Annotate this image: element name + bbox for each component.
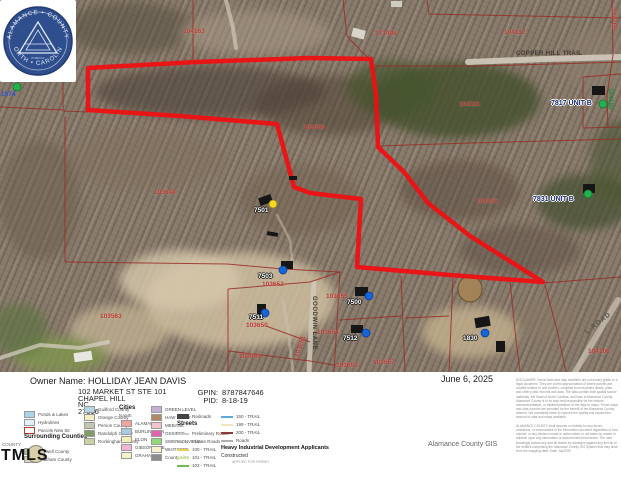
legend-item: GREEN LEVEL [151,406,196,413]
parcel-label: 104106 [588,348,610,355]
legend-item: ELON [121,436,147,443]
legend-item: 150 - TRAIL [221,414,260,419]
legend-heading: APPLIED FOR PERMIT [232,460,269,464]
parcel-label: 104163 [183,28,205,35]
legend-swatch [221,424,233,426]
legend-swatch [84,406,95,413]
parcel-label: 103657 [373,359,395,366]
road-label: GOODWIN LANE [310,296,317,350]
legend-swatch [177,457,189,459]
legend-swatch [151,438,162,445]
legend-swatch [151,446,162,453]
legend-item: Private Roads [177,439,220,444]
legend-heading: Surrounding Counties [24,434,87,440]
legend-swatch [177,441,189,443]
parcel-label: 7512 [343,335,357,342]
green-point-marker [584,190,592,198]
pond [458,276,482,302]
legend-item: Roads [221,438,249,443]
legend-label: GREEN LEVEL [165,407,196,412]
parcel-label: 7831 UNIT B [533,196,574,203]
legend-swatch [121,452,132,459]
info-band: Owner Name: HOLLIDAY JEAN DAVIS June 6, … [0,372,621,480]
yellow-point-marker [269,200,277,208]
legend-swatch [84,422,95,429]
legend-swatch [121,428,132,435]
legend-item: 101 - TRAIL [177,455,216,460]
legend-swatch [151,414,162,421]
parcel-label: 103656 [303,124,325,131]
legend-label: 150 - TRAIL [236,414,260,419]
legend-item: Hydrolines [24,419,59,426]
legend-heading: Heavy Industrial Development Applicants [221,445,329,451]
legend-item: Railroads [177,414,211,419]
legend-item: 102 - TRAIL [177,463,216,468]
legend-heading: Cities [119,405,135,411]
legend-item: Ponds & Lakes [24,411,68,418]
legend-swatch [24,411,35,418]
legend-label: 200 - TRAIL [236,430,260,435]
legend-label: Hydrolines [38,420,59,425]
legend-swatch [151,422,162,429]
parcel-label: 103652 [262,281,284,288]
legend-swatch [177,414,189,419]
legend-swatch [84,438,95,445]
parcel-label: 7500 [347,299,361,306]
legend-label: 100 - TRAIL [192,447,216,452]
legend-label: Railroads [192,414,211,419]
seal-motto: PUBLICO [31,56,45,60]
blue-point-marker [365,292,373,300]
legend-swatch [84,430,95,437]
legend-swatch [121,420,132,427]
parcel-label: 7511 [249,314,263,321]
legend-swatch [121,444,132,451]
green-point-marker [13,83,21,91]
legend-swatch [177,433,189,435]
legend-swatch [221,416,233,418]
legend-heading: Constructed [221,453,248,459]
legend-swatch [24,427,35,434]
parcel-label: 1574 [1,91,15,98]
legend-label: 101 - TRAIL [192,455,216,460]
blue-point-marker [362,329,370,337]
parcel-label: 103654 [317,329,339,336]
legend-heading: Streets [177,421,197,427]
legend-swatch [221,432,233,434]
parcel-label: 103563 [100,313,122,320]
parcel-label: 103653 [336,362,358,369]
parcel-label: 104111 [459,101,480,108]
parcel-label: 104150 [607,88,614,110]
legend-item: 200 - TRAIL [221,430,260,435]
parcel-label: 103648 [154,189,176,196]
parcel-label: 171498 [375,30,397,37]
legend-swatch [24,419,35,426]
legend-swatch [151,430,162,437]
legend-swatch [177,465,189,467]
blue-point-marker [279,266,287,274]
legend-swatch [84,414,95,421]
legend-label: Private Roads [192,439,220,444]
legend-swatch [177,449,189,451]
parcel-label: 7501 [254,207,268,214]
parcel-label: 104105 [476,198,498,205]
legend-swatch [151,454,162,461]
legend-swatch [121,436,132,443]
tmls-logo: TMLS [1,447,49,465]
legend-label: 199 - TRAIL [236,422,260,427]
map-legend: Ponds & LakesHydrolinesParcels New 50Sur… [0,372,621,480]
legend-label: Roads [236,438,249,443]
parcel-label: 103655 [326,293,348,300]
legend-label: 102 - TRAIL [192,463,216,468]
legend-label: ELON [135,437,147,442]
legend-item: 100 - TRAIL [177,447,216,452]
legend-item: 199 - TRAIL [221,422,260,427]
parcel-label: 7817 UNIT B [551,100,592,107]
legend-label: Parcels New 50 [38,428,70,433]
parcel-label: 7503 [258,273,272,280]
legend-swatch [151,406,162,413]
parcel-label: 132765 [610,8,617,30]
legend-item: Parcels New 50 [24,427,70,434]
gis-map-export: ALAMANCE • COUNTY NORTH • CAROLINA PUBLI… [0,0,621,480]
road-label: COPPER HILL TRAIL [516,51,582,58]
legend-swatch [221,440,233,442]
county-seal: ALAMANCE • COUNTY NORTH • CAROLINA PUBLI… [0,0,76,82]
green-point-marker [599,100,607,108]
parcel-label: 1830 [463,335,477,342]
parcel-label: 103649 [239,353,261,360]
parcel-label: 103650 [246,322,268,329]
legend-item: GRAHAM [121,452,155,459]
parcel-label: 104112 [504,29,525,36]
legend-label: Ponds & Lakes [38,412,68,417]
legend-heading: NAME [119,413,132,418]
blue-point-marker [481,329,489,337]
map-canvas: ALAMANCE • COUNTY NORTH • CAROLINA PUBLI… [0,0,621,372]
